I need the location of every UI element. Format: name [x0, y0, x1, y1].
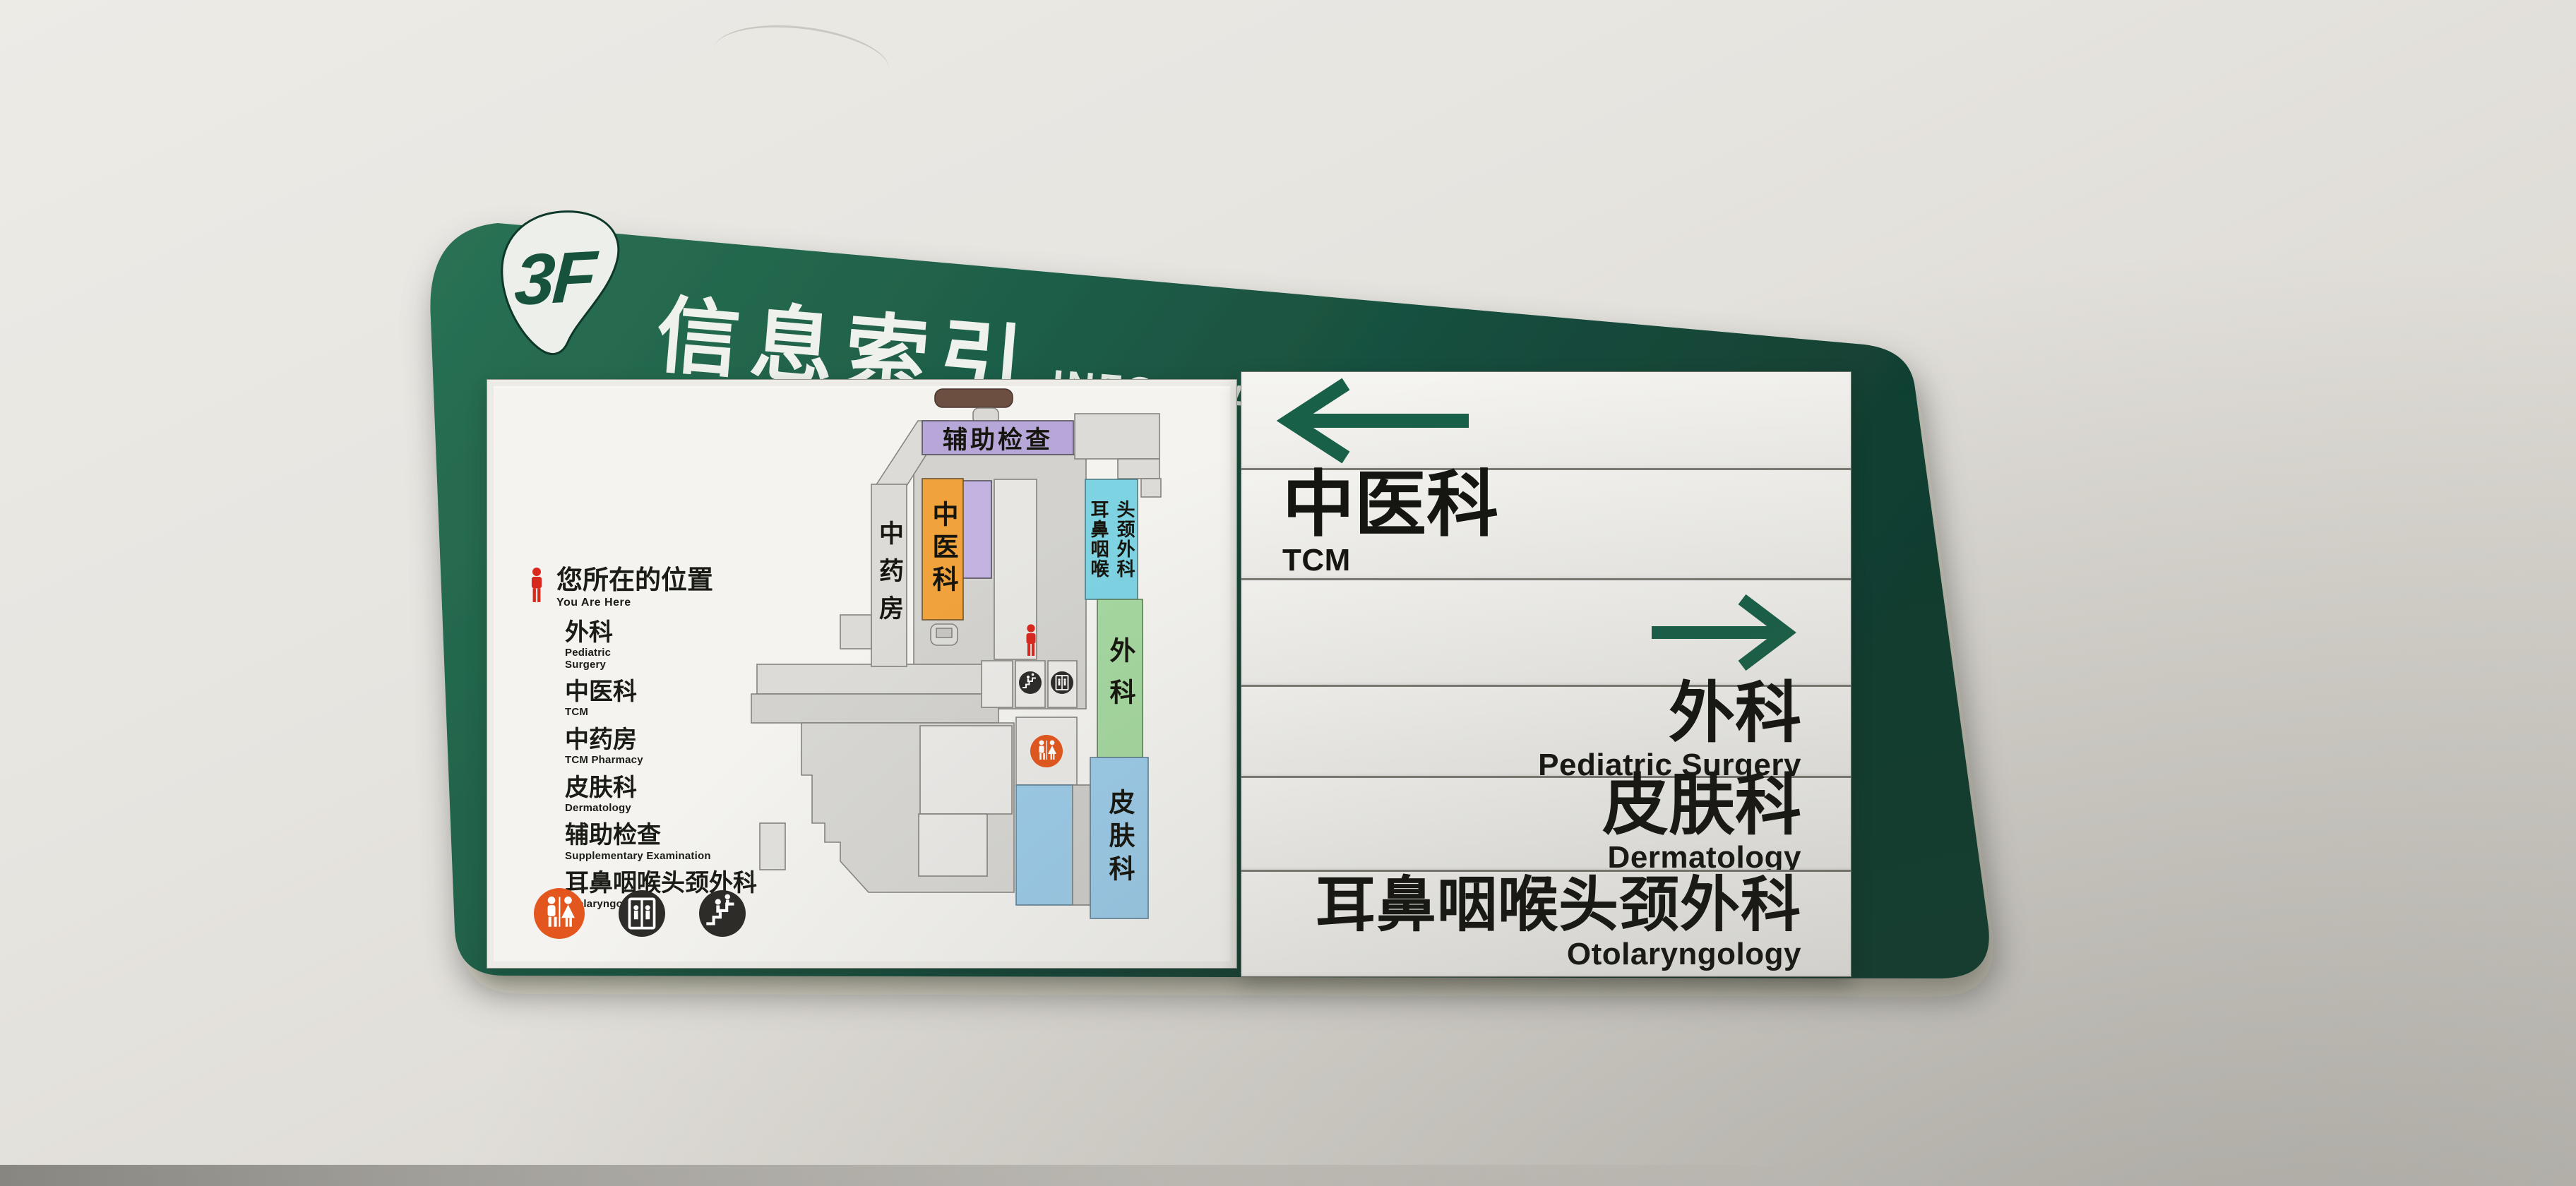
- map-top-right-block: [1075, 414, 1159, 459]
- map-label-aux-exam: 辅助检查: [922, 421, 1073, 455]
- map-room-2: [919, 814, 987, 876]
- directory-row-tcm: 中医科 TCM: [1241, 468, 1851, 578]
- map-legend: 您所在的位置 You Are Here 外科 Pediatric Surgery…: [528, 566, 832, 919]
- directory-row-dermatology: 皮肤科 Dermatology: [1241, 776, 1851, 870]
- directory-dept-cn: 中医科: [1282, 470, 1851, 541]
- legend-en: Supplementary Examination: [565, 851, 832, 862]
- legend-en: Dermatology: [565, 803, 832, 814]
- directory-dept-en: TCM: [1282, 543, 1851, 578]
- directory-row-arrow-right: [1241, 578, 1851, 685]
- legend-item-aux-exam: 辅助检查 Supplementary Examination: [565, 823, 832, 862]
- map-top-right-small: [1141, 479, 1161, 497]
- bottom-shadow-strip: [0, 1165, 2576, 1186]
- restroom-icon: [534, 888, 585, 939]
- legend-en: TCM Pharmacy: [565, 755, 832, 766]
- map-label-ent: 头颈外科 耳鼻咽喉: [1085, 479, 1138, 599]
- map-bar-lavender: [959, 481, 991, 578]
- legend-items: 外科 Pediatric Surgery 中医科 TCM 中药房 TCM Pha…: [528, 621, 832, 910]
- directory-panel: 中医科 TCM 外科 Pediatric Surgery 皮肤科 Dermato…: [1241, 371, 1851, 977]
- legend-en: TCM: [565, 707, 832, 718]
- legend-item-surgery: 外科 Pediatric Surgery: [565, 621, 832, 671]
- legend-cn: 中医科: [565, 680, 832, 705]
- map-bar-blue-left: [1016, 785, 1073, 905]
- map-white-column: [994, 479, 1037, 659]
- map-restroom-icon: [1030, 735, 1063, 767]
- legend-item-tcm: 中医科 TCM: [565, 680, 832, 719]
- floor-map-panel: 辅助检查 中药房 中医科 头颈外科 耳鼻咽喉 外科 皮肤科 您所在的位置 You…: [487, 379, 1237, 969]
- map-small-room: [840, 615, 871, 649]
- map-stairs-icon: [1019, 671, 1042, 694]
- map-label-dermatology: 皮肤科: [1090, 757, 1148, 918]
- photo-of-hospital-sign: 3F 信息索引INFORMATION: [0, 0, 2576, 1186]
- directory-dept-en: Otolaryngology: [1567, 937, 1801, 972]
- you-are-here-cn: 您所在的位置: [556, 566, 713, 595]
- legend-cn: 中药房: [565, 728, 832, 753]
- map-label-tcm: 中医科: [922, 479, 963, 620]
- map-elevator-icon: [1051, 671, 1073, 694]
- you-are-here-en: You Are Here: [556, 597, 713, 609]
- legend-en: Pediatric Surgery: [565, 647, 832, 670]
- directory-row-surgery: 外科 Pediatric Surgery: [1241, 685, 1851, 776]
- you-are-here-row: 您所在的位置 You Are Here: [528, 566, 832, 609]
- directory-row-arrow-left: [1241, 372, 1851, 468]
- map-label-surgery: 外科: [1097, 599, 1143, 757]
- map-bench-top: [935, 389, 1013, 407]
- floor-badge-label: 3F: [488, 234, 621, 323]
- map-tcm-tab-notch: [936, 628, 952, 637]
- you-are-here-person-icon: [528, 568, 545, 603]
- legend-cn: 辅助检查: [565, 823, 832, 849]
- floor-badge: 3F: [490, 209, 631, 359]
- directory-dept-cn: 皮肤科: [1602, 773, 1801, 838]
- legend-item-tcm-pharmacy: 中药房 TCM Pharmacy: [565, 728, 832, 767]
- map-label-tcm-pharmacy: 中药房: [871, 486, 907, 666]
- stairs-icon: [699, 890, 746, 937]
- map-room-1: [920, 726, 1012, 814]
- directory-dept-cn: 耳鼻咽喉头颈外科: [1316, 876, 1801, 935]
- legend-item-dermatology: 皮肤科 Dermatology: [565, 776, 832, 815]
- arrow-right-icon: [1646, 589, 1808, 676]
- legend-cn: 皮肤科: [565, 776, 832, 801]
- facility-icons-row: [534, 888, 780, 939]
- map-gap-strip: [1073, 785, 1090, 905]
- directory-dept-cn: 外科: [1669, 681, 1801, 745]
- elevator-icon: [619, 890, 665, 937]
- map-service-block: [982, 661, 1013, 707]
- legend-cn: 外科: [565, 621, 832, 646]
- arrow-left-icon: [1263, 373, 1474, 468]
- map-top-right-step: [1118, 459, 1159, 479]
- directory-row-ent: 耳鼻咽喉头颈外科 Otolaryngology: [1241, 870, 1851, 976]
